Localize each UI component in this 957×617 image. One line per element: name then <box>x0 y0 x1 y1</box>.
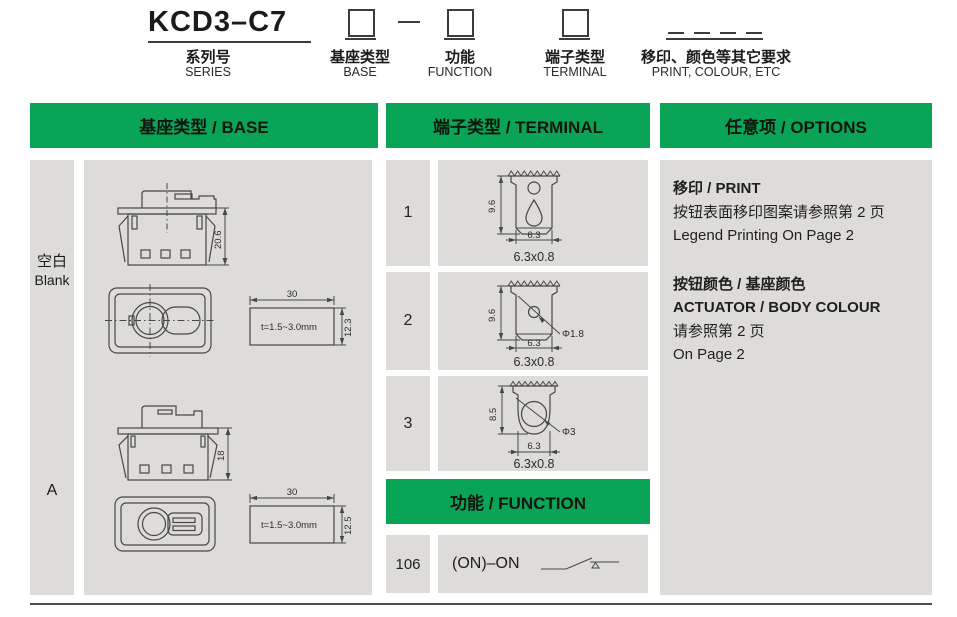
function-box-underline <box>444 38 475 40</box>
terminal-box-underline <box>559 38 590 40</box>
base-box-underline <box>345 38 376 40</box>
momentary-switch-symbol-icon <box>538 551 623 577</box>
base-blank-top-view-drawing <box>105 283 215 358</box>
dim-cutout-height-a: 12.5 <box>343 517 354 536</box>
series-underline <box>148 41 311 43</box>
field-function-label-en: FUNCTION <box>402 65 518 79</box>
dash-icon <box>746 32 762 34</box>
dim-cutout-width-blank: 30 <box>287 289 298 300</box>
dim-terminal-2-width: 6.3 <box>527 338 540 349</box>
series-code: KCD3–C7 <box>148 6 287 39</box>
function-row-cell: (ON)–ON <box>438 535 648 593</box>
base-code-box <box>348 9 375 37</box>
function-code-box <box>447 9 474 37</box>
field-function-label-cn: 功能 <box>402 46 518 67</box>
base-row-a-code: A <box>30 482 74 500</box>
field-base-label-cn: 基座类型 <box>302 46 418 67</box>
function-row-label: (ON)–ON <box>452 555 520 573</box>
bottom-rule <box>30 603 932 605</box>
section-header-terminal-label: 端子类型 / TERMINAL <box>433 113 603 138</box>
terminal-row-3-cell: Φ3 8.5 6.3 6.3x0.8 <box>438 376 648 471</box>
field-base-label-en: BASE <box>302 65 418 79</box>
dim-terminal-3-height: 8.5 <box>488 408 499 421</box>
field-options-label-en: PRINT, COLOUR, ETC <box>635 65 797 79</box>
terminal-row-1-cell: 9.6 6.3 6.3x0.8 <box>438 160 648 266</box>
dim-terminal-3-width: 6.3 <box>527 441 540 452</box>
terminal-type-1-drawing: 9.6 6.3 6.3x0.8 <box>438 160 648 266</box>
dim-height-blank: 20.6 <box>213 231 224 250</box>
datasheet-page: KCD3–C7 系列号 SERIES 基座类型 BASE 功能 FUNCTION… <box>0 0 957 617</box>
code-separator-dash <box>398 21 420 23</box>
base-a-side-view-drawing: 18 <box>100 393 312 483</box>
dim-cutout-width-a: 30 <box>287 487 298 498</box>
terminal-type-2-drawing: Φ1.8 9.6 6.3 6.3x0.8 <box>438 272 648 370</box>
base-a-top-view-drawing <box>112 494 218 554</box>
section-header-terminal: 端子类型 / TERMINAL <box>386 103 650 148</box>
section-header-options-label: 任意项 / OPTIONS <box>725 113 867 138</box>
base-row-blank-code-en: Blank <box>30 272 74 288</box>
dim-terminal-2-hole: Φ1.8 <box>562 329 584 340</box>
dim-cutout-height-blank: 12.3 <box>343 319 354 338</box>
dim-height-a: 18 <box>216 450 227 461</box>
options-colour-line1: ACTUATOR / BODY COLOUR <box>673 296 923 320</box>
terminal-1-caption: 6.3x0.8 <box>513 250 554 264</box>
series-label-cn: 系列号 <box>150 46 266 67</box>
options-print-title: 移印 / PRINT <box>673 177 923 201</box>
base-blank-side-view-drawing: 20.6 <box>95 165 325 277</box>
dash-icon <box>694 32 710 34</box>
cutout-thickness-blank: t=1.5~3.0mm <box>261 322 317 333</box>
base-drawing-panel: 20.6 30 t=1.5~3.0mm 12.3 <box>84 160 372 595</box>
section-header-base: 基座类型 / BASE <box>30 103 378 148</box>
field-terminal-label-en: TERMINAL <box>517 65 633 79</box>
section-header-function-label: 功能 / FUNCTION <box>450 489 586 514</box>
series-label-en: SERIES <box>150 65 266 79</box>
cutout-thickness-a: t=1.5~3.0mm <box>261 520 317 531</box>
dash-icon <box>668 32 684 34</box>
terminal-row-3-code: 3 <box>386 376 430 471</box>
options-print-line-en: Legend Printing On Page 2 <box>673 224 923 248</box>
options-colour-title: 按钮颜色 / 基座颜色 <box>673 273 923 297</box>
section-header-function: 功能 / FUNCTION <box>386 479 650 524</box>
dim-terminal-3-hole: Φ3 <box>562 427 576 438</box>
terminal-code-box <box>562 9 589 37</box>
options-colour-line3: On Page 2 <box>673 343 923 367</box>
dim-terminal-2-height: 9.6 <box>487 309 498 322</box>
options-print-line-cn: 按钮表面移印图案请参照第 2 页 <box>673 201 923 225</box>
terminal-2-caption: 6.3x0.8 <box>513 355 554 369</box>
series-code-text: KCD3–C7 <box>148 6 287 38</box>
dim-terminal-1-height: 9.6 <box>487 200 498 213</box>
dash-icon <box>720 32 736 34</box>
options-underline <box>666 38 763 40</box>
options-colour-line2: 请参照第 2 页 <box>673 320 923 344</box>
dim-terminal-1-width: 6.3 <box>527 230 540 241</box>
section-header-base-label: 基座类型 / BASE <box>139 113 268 138</box>
base-row-blank-code-cn: 空白 <box>30 250 74 271</box>
terminal-3-caption: 6.3x0.8 <box>513 457 554 471</box>
terminal-row-2-cell: Φ1.8 9.6 6.3 6.3x0.8 <box>438 272 648 370</box>
options-panel: 移印 / PRINT 按钮表面移印图案请参照第 2 页 Legend Print… <box>660 160 932 595</box>
options-spacer <box>673 248 923 273</box>
terminal-type-3-drawing: Φ3 8.5 6.3 6.3x0.8 <box>438 376 648 471</box>
section-header-options: 任意项 / OPTIONS <box>660 103 932 148</box>
field-terminal-label-cn: 端子类型 <box>517 46 633 67</box>
field-options-label-cn: 移印、颜色等其它要求 <box>635 46 797 67</box>
options-text-block: 移印 / PRINT 按钮表面移印图案请参照第 2 页 Legend Print… <box>673 177 923 367</box>
options-dash-placeholders <box>668 21 762 39</box>
function-row-code: 106 <box>386 535 430 593</box>
base-code-strip: 空白 Blank A <box>30 160 74 595</box>
terminal-row-1-code: 1 <box>386 160 430 266</box>
terminal-row-2-code: 2 <box>386 272 430 370</box>
base-blank-cutout-drawing: 30 t=1.5~3.0mm 12.3 <box>242 288 354 358</box>
base-a-cutout-drawing: 30 t=1.5~3.0mm 12.5 <box>242 486 354 556</box>
